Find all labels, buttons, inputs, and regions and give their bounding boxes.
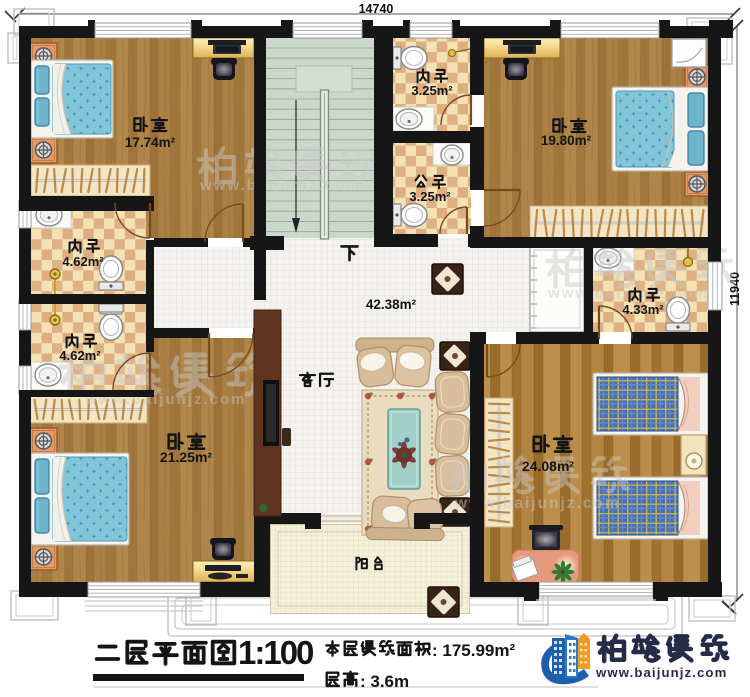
svg-text:: 3.6m: : 3.6m — [360, 672, 409, 691]
svg-text:www.baijunjz.com: www.baijunjz.com — [547, 285, 709, 302]
svg-text:19.80m²: 19.80m² — [541, 133, 592, 148]
svg-text:42.38m²: 42.38m² — [366, 297, 417, 312]
svg-text:4.62m²: 4.62m² — [62, 254, 104, 269]
svg-text:4.62m²: 4.62m² — [59, 348, 101, 363]
svg-text:4.33m²: 4.33m² — [622, 302, 664, 317]
svg-text:3.25m²: 3.25m² — [409, 189, 451, 204]
svg-text:21.25m²: 21.25m² — [160, 449, 212, 465]
svg-text:www.baijunjz.com: www.baijunjz.com — [199, 177, 361, 194]
svg-text:14740: 14740 — [359, 2, 394, 16]
svg-text:: 175.99m²: : 175.99m² — [432, 641, 515, 660]
svg-text:17.74m²: 17.74m² — [125, 135, 176, 150]
svg-text:1:100: 1:100 — [238, 634, 313, 671]
svg-text:3.25m²: 3.25m² — [411, 83, 453, 98]
svg-text:24.08m²: 24.08m² — [522, 458, 574, 474]
svg-text:www.baijunjz.com: www.baijunjz.com — [595, 665, 727, 680]
